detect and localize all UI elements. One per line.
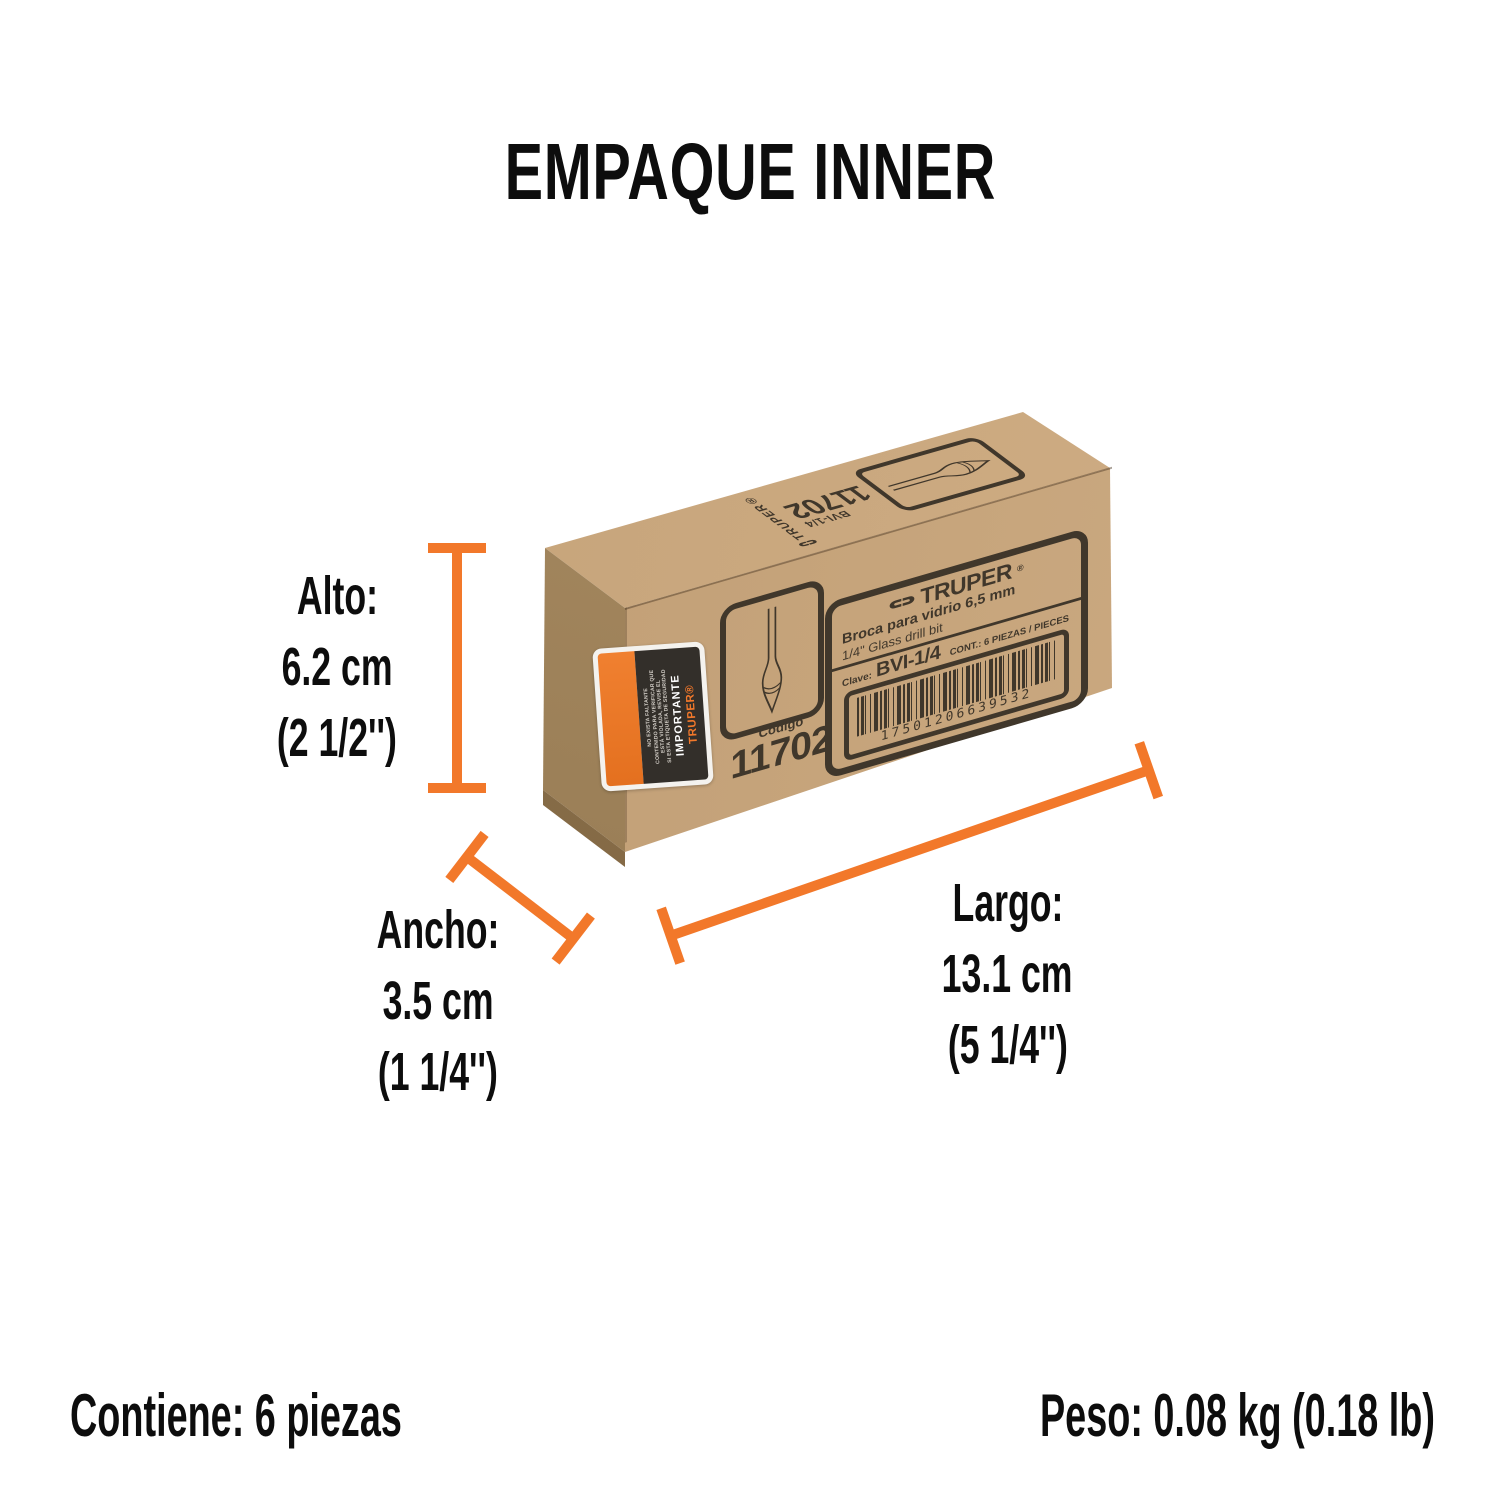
security-label-brand: TRUPER® — [684, 684, 700, 744]
ancho-imperial: (1 1/4'') — [378, 1037, 498, 1108]
alto-dimension-label: Alto: 6.2 cm (2 1/2'') — [217, 561, 457, 774]
alto-label: Alto: — [296, 561, 377, 632]
weight-text: Peso: 0.08 kg (0.18 lb) — [808, 1381, 1435, 1450]
registered-mark: ® — [1017, 562, 1024, 574]
weight-label: Peso: — [1040, 1382, 1143, 1449]
weight-line: Peso: 0.08 kg (0.18 lb) — [1040, 1381, 1435, 1450]
contains-text: Contiene: 6 piezas — [70, 1381, 597, 1450]
largo-metric: 13.1 cm — [942, 939, 1073, 1010]
top-code: 11702 — [777, 482, 877, 522]
largo-label: Largo: — [952, 868, 1063, 939]
drill-bit-icon — [753, 601, 791, 721]
weight-value: 0.08 kg (0.18 lb) — [1153, 1382, 1435, 1449]
security-label: TRUPER® IMPORTANTE SI ESTA ETIQUETA DE S… — [592, 641, 714, 791]
ancho-metric: 3.5 cm — [383, 966, 494, 1037]
front-info-panel: TRUPER ® Broca para vidrio 6,5 mm 1/4" G… — [825, 527, 1088, 780]
alto-metric: 6.2 cm — [282, 632, 393, 703]
top-panel-codes: BVI-1/4 11702 — [777, 482, 887, 529]
truper-chain-icon — [889, 593, 915, 612]
empaque-inner-diagram: EMPAQUE INNER BVI-1/4 11702 TRUPER® — [0, 0, 1500, 1500]
page-title-text: EMPAQUE INNER — [504, 126, 996, 218]
security-label-text-area: TRUPER® IMPORTANTE SI ESTA ETIQUETA DE S… — [634, 647, 708, 784]
drill-bit-icon — [875, 449, 1006, 500]
contains-value: Contiene: 6 piezas — [70, 1381, 402, 1450]
largo-dimension-label: Largo: 13.1 cm (5 1/4'') — [885, 868, 1130, 1081]
largo-imperial: (5 1/4'') — [948, 1010, 1068, 1081]
ancho-label: Ancho: — [377, 895, 500, 966]
alto-imperial: (2 1/2'') — [277, 703, 397, 774]
page-title: EMPAQUE INNER — [0, 126, 1500, 218]
ancho-dimension-label: Ancho: 3.5 cm (1 1/4'') — [318, 895, 558, 1108]
